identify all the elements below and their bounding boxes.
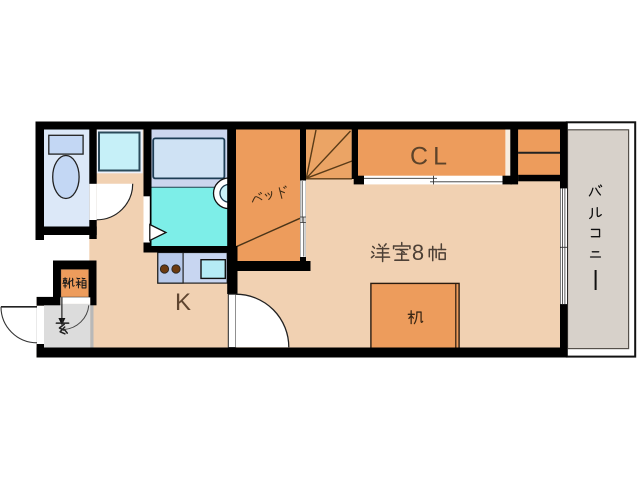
svg-text:CL: CL <box>410 143 452 171</box>
svg-text:K: K <box>175 289 191 316</box>
svg-text:8: 8 <box>412 240 424 265</box>
